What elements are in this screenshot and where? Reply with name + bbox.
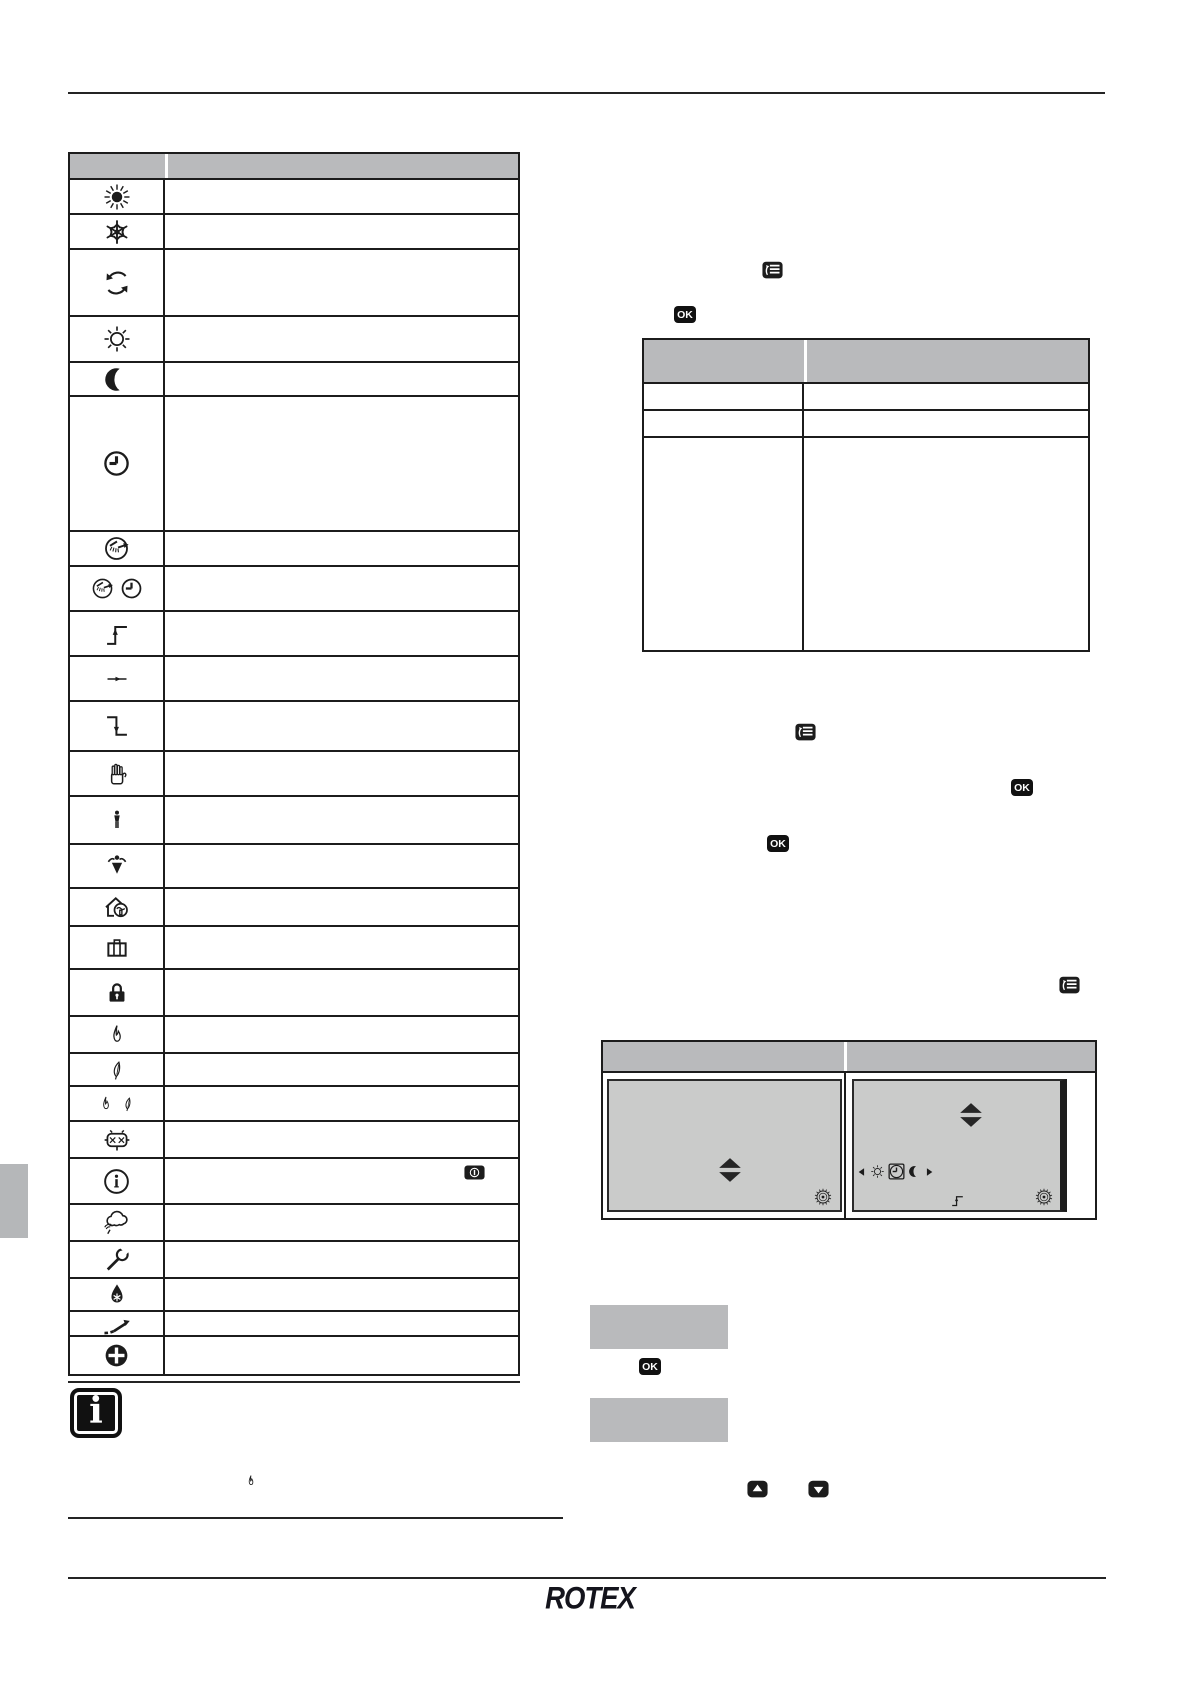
mode-table-cell (804, 438, 1088, 650)
symbol-description-cell (165, 752, 518, 795)
person-icon (70, 797, 165, 843)
info-note-i-glyph: i (89, 1393, 103, 1429)
symbol-description-cell (165, 1054, 518, 1085)
table-row (70, 1242, 518, 1279)
symbol-description-cell (165, 1122, 518, 1157)
screen-mode-icon-row (857, 1163, 934, 1180)
info-note-separator-rule (68, 1381, 520, 1383)
symbol-description-cell (165, 1205, 518, 1240)
updown-arrows-icon (717, 1153, 743, 1187)
table-row (70, 1205, 518, 1242)
table-row (70, 702, 518, 752)
footnote-flame-icon (244, 1472, 258, 1490)
tri-left-icon (857, 1166, 867, 1178)
figure-cell-left (603, 1073, 846, 1218)
brand-logo: ROTEX (539, 1580, 641, 1617)
symbol-table-header-symbol (70, 154, 165, 178)
table-row (644, 411, 1088, 438)
symbol-description-cell (165, 1337, 518, 1374)
ramp-arrow-icon (70, 1312, 165, 1335)
hand-icon (70, 752, 165, 795)
table-row (70, 1159, 518, 1205)
lock-icon (70, 970, 165, 1015)
flame-icon (70, 1017, 165, 1052)
up-button-icon (747, 1480, 768, 1498)
table-row (70, 797, 518, 845)
step-up-icon (70, 612, 165, 655)
ok-button-badge: OK (674, 306, 696, 323)
mode-table-cell (804, 384, 1088, 409)
ok-button-badge: OK (1011, 779, 1033, 796)
rotary-dial-icon (813, 1187, 833, 1207)
symbol-description-cell (165, 1242, 518, 1277)
symbol-description-cell (165, 702, 518, 750)
table-row (70, 1054, 518, 1087)
sun-filled-icon (70, 180, 165, 213)
defrost-rotate-icon (70, 250, 165, 315)
mode-table-header (644, 340, 1088, 384)
down-button-icon (808, 1480, 829, 1498)
mode-table-header-col1 (644, 340, 804, 382)
table-row: ×× (70, 1122, 518, 1159)
symbol-description-cell (165, 1087, 518, 1120)
mode-table-cell (804, 411, 1088, 436)
symbol-description-cell (165, 1279, 518, 1310)
house-ventilation-icon (70, 889, 165, 925)
menu-button-icon (762, 261, 783, 279)
table-row (644, 438, 1088, 650)
symbol-description-cell (165, 797, 518, 843)
figure-table-header-col2 (847, 1042, 1095, 1071)
table-row (70, 250, 518, 317)
ok-button-badge: OK (639, 1358, 661, 1375)
table-row (70, 1337, 518, 1374)
table-row (70, 845, 518, 889)
step-up-icon (949, 1193, 966, 1208)
symbol-description-cell (165, 927, 518, 968)
clock-boxed-icon (888, 1163, 905, 1180)
symbol-description-cell (165, 657, 518, 700)
ok-button-label: OK (677, 309, 693, 321)
symbol-description-cell (165, 612, 518, 655)
mode-table-cell (644, 384, 804, 409)
menu-button-icon (795, 723, 816, 741)
briefcase-icon (70, 927, 165, 968)
display-figure-table (601, 1040, 1097, 1220)
table-row (70, 317, 518, 363)
ok-button-label: OK (770, 838, 786, 850)
ok-button-badge: OK (767, 835, 789, 852)
table-row (70, 1087, 518, 1122)
sun-outline-icon (70, 317, 165, 361)
table-row (70, 1312, 518, 1337)
symbol-description-cell (165, 397, 518, 530)
display-screen-right (852, 1079, 1067, 1212)
moon-icon (70, 363, 165, 395)
flame-leaf-icon (70, 1087, 165, 1120)
svg-text:××: ×× (108, 1134, 126, 1146)
updown-arrows-icon (958, 1098, 984, 1132)
symbol-description-cell (165, 180, 518, 213)
table-row (70, 215, 518, 250)
arrow-continuous-icon (70, 657, 165, 700)
mode-table-cell (644, 438, 804, 650)
symbol-description-cell (165, 317, 518, 361)
mode-table-cell (644, 411, 804, 436)
symbol-legend-table: ×× (68, 152, 520, 1376)
table-row (70, 927, 518, 970)
sun-outline-small-icon (870, 1164, 885, 1179)
ok-button-label: OK (642, 1361, 658, 1373)
symbol-description-cell (165, 363, 518, 395)
table-row (70, 889, 518, 927)
table-row (70, 1279, 518, 1312)
table-row (70, 612, 518, 657)
rotary-info-badge (464, 1164, 485, 1181)
symbol-description-cell (165, 1017, 518, 1052)
figure-cell-right (846, 1073, 1095, 1218)
cloud-signal-icon (70, 1205, 165, 1240)
symbol-description-cell (165, 532, 518, 565)
clock-icon (70, 397, 165, 530)
mode-table-header-col2 (807, 340, 1088, 382)
table-row (70, 397, 518, 532)
drop-snowflake-icon (70, 1279, 165, 1310)
table-row (70, 752, 518, 797)
chapter-edge-tab (0, 1164, 28, 1238)
dhw-boost-icon (70, 532, 165, 565)
table-row (70, 363, 518, 397)
table-row (70, 657, 518, 702)
dhw-clock-icon (70, 567, 165, 610)
header-rule (68, 92, 1105, 94)
tri-right-icon (924, 1166, 934, 1178)
figure-table-header-col1 (603, 1042, 844, 1071)
symbol-description-cell (165, 1159, 518, 1203)
display-value-box (590, 1398, 728, 1442)
rotary-dial-icon (1034, 1187, 1054, 1207)
figure-table-body (603, 1073, 1095, 1218)
symbol-description-cell (165, 1312, 518, 1335)
info-note-icon: i (70, 1388, 122, 1438)
snowflake-icon (70, 215, 165, 248)
symbol-description-cell (165, 250, 518, 315)
table-row (70, 1017, 518, 1054)
person-absent-icon (70, 845, 165, 887)
symbol-table-header-meaning (168, 154, 518, 178)
table-row (70, 970, 518, 1017)
display-value-box (590, 1305, 728, 1349)
display-screen-left (607, 1079, 842, 1212)
moon-small-icon (908, 1165, 921, 1178)
menu-button-icon (1059, 976, 1080, 994)
footer-rule (68, 1577, 1106, 1579)
symbol-description-cell (165, 567, 518, 610)
burner-fault-icon: ×× (70, 1122, 165, 1157)
column-end-rule (68, 1517, 563, 1519)
symbol-description-cell (165, 845, 518, 887)
plus-circle-icon (70, 1337, 165, 1374)
operating-mode-table (642, 338, 1090, 652)
info-circle-icon (70, 1159, 165, 1203)
table-row (70, 532, 518, 567)
ok-button-label: OK (1014, 782, 1030, 794)
table-row (70, 180, 518, 215)
table-row (70, 567, 518, 612)
symbol-description-cell (165, 970, 518, 1015)
leaf-icon (70, 1054, 165, 1085)
manual-page: ×× i OK OK (0, 0, 1191, 1684)
step-down-icon (70, 702, 165, 750)
symbol-description-cell (165, 215, 518, 248)
wrench-icon (70, 1242, 165, 1277)
table-row (644, 384, 1088, 411)
symbol-table-header (70, 154, 518, 180)
figure-table-header (603, 1042, 1095, 1073)
symbol-description-cell (165, 889, 518, 925)
